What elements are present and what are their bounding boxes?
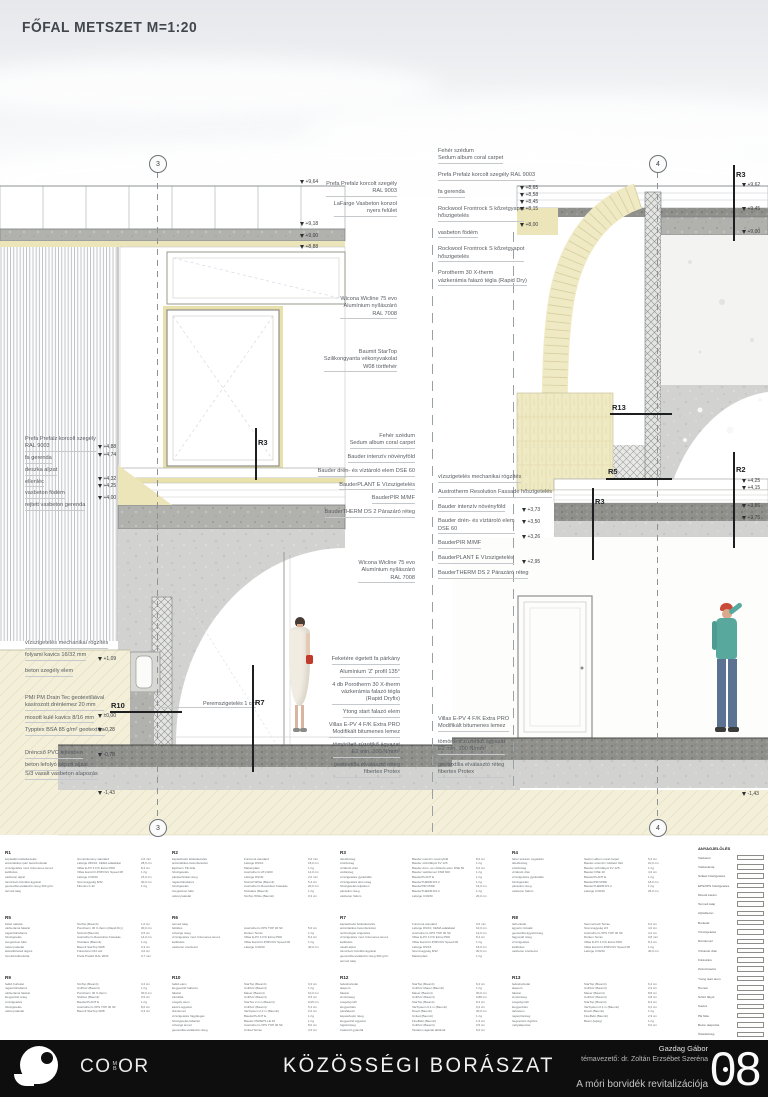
author: Gazdag Gábor <box>460 1044 708 1055</box>
studio-name: CO M B OR <box>80 1056 150 1078</box>
annotation-label: vízszigetelés mechanikai rögzítés <box>438 474 521 483</box>
layer-table: R8 térburkolat Semmelrock Terrae 6,0 cm … <box>512 915 674 954</box>
annotation-label: Villas E-PV 4 F/K Extra PRO Modifikált b… <box>329 722 400 738</box>
figure-man <box>704 603 746 740</box>
annotation-label: folyami kavics 16/32 mm <box>25 652 86 661</box>
elevation-marker: +9,62 <box>742 183 760 188</box>
annotation-label: vízszigetelés mechanikai rögzítés <box>25 640 108 649</box>
layer-row: termett talaj <box>340 959 502 964</box>
annotation-label: fa gerenda <box>438 189 465 198</box>
elevation-marker: +4,88 <box>98 445 116 450</box>
man-jeans-leg <box>728 659 737 727</box>
elevation-marker: +9,00 <box>742 230 760 235</box>
annotation-group-right-floor: Villas E-PV 4 F/K Extra PRO Modifikált b… <box>438 716 550 778</box>
annotation-group-left-window-top: Wicona Wicline 75 evo Alumínium nyílászá… <box>285 296 397 319</box>
annotation-label: geotextília elválasztó réteg fibertex Pr… <box>334 762 400 778</box>
annotation-label: BauderPLANT E Vízszigetelés <box>339 482 415 491</box>
material-legend-row: Zúzott kavics <box>698 965 768 974</box>
annotation-label: Prefa Prefalz korcolt szegély RAL 9003 <box>25 436 96 452</box>
layer-table-rows: fedésburkolat StarTop (Baumit) 6,2 cm al… <box>340 982 502 1033</box>
annotation-label: PMI PM Drain Tec geotextíliával kasírozo… <box>25 695 104 711</box>
r3-line <box>255 428 257 480</box>
elevation-marker: +9,18 <box>300 222 318 227</box>
material-swatch <box>737 873 764 879</box>
annotation-group-left-foundation: S/3 vasalt vasbeton alapozás <box>25 771 180 780</box>
annotation-label: Alumínium 'Z' profil 135° <box>340 669 400 678</box>
annotation-label: BauderPIR M/MF <box>438 540 481 549</box>
r2-label: R2 <box>736 465 746 474</box>
r13-label: R13 <box>612 403 626 412</box>
material-legend-row: Szűrő fátyol <box>698 992 768 1001</box>
r10-label: R10 <box>111 701 125 710</box>
material-legend-row: Termett talaj <box>698 899 768 908</box>
material-legend-row: Beton alapozás <box>698 1020 768 1029</box>
material-swatch <box>737 939 764 945</box>
material-swatch <box>737 994 764 1000</box>
section-cut-line <box>432 228 433 832</box>
annotation-label: Dréncső PVC lejtésben <box>25 750 83 759</box>
elevation-marker: +2,95 <box>522 560 540 565</box>
elevation-marker: +4,00 <box>98 496 116 501</box>
elevation-marker: -0,78 <box>98 753 115 758</box>
material-swatch <box>737 929 764 935</box>
annotation-label: Porotherm 30 X-therm vázkerámia falazó t… <box>438 270 527 286</box>
annotation-group-right-roof: Fehér szédum Sedum album coral carpetPre… <box>438 148 553 286</box>
man-shoe <box>728 727 739 732</box>
material-legend-row: Víztároló drén <box>698 946 768 955</box>
layer-table-rows: fehér szédum vegetáció Sedum album coral… <box>512 857 674 894</box>
material-swatch <box>737 1022 764 1028</box>
annotation-group-left-grade-b: beton szegély elem <box>25 668 180 677</box>
r7-label: R7 <box>255 698 265 707</box>
elevation-marker: -1,43 <box>98 791 115 796</box>
layer-row: vasbeton födém Lafarge C30/40 20,0 cm <box>340 894 502 899</box>
annotation-label: beton lefolyó képző aljzat <box>25 762 88 771</box>
elevation-marker: +9,00 <box>300 234 318 239</box>
annotation-group-left-window: Wicona Wicline 75 evo Alumínium nyílászá… <box>303 560 415 583</box>
layer-table: R6 termett talaj feltöltés Austrotherm X… <box>172 915 334 949</box>
elevation-marker: +3,50 <box>522 520 540 525</box>
annotation-group-left-greenroof: Fehér szédum Sedum album coral carpetBau… <box>303 433 415 518</box>
r13-line <box>610 413 672 415</box>
annotation-label: 4 db Porotherm 30 X-therm vázkerámia fal… <box>332 682 400 705</box>
material-legend-row: Vízszigetelés <box>698 927 768 936</box>
annotation-label: ellenléc <box>25 479 44 488</box>
material-legend-row: Aljzatbeton <box>698 909 768 918</box>
layer-table-rows: ültetőközeg Bauder intenzív növényföld 8… <box>340 857 502 899</box>
layer-table-id: R6 <box>172 915 334 920</box>
material-legend-row: Vázkerámia <box>698 862 768 871</box>
sheet-title: FŐFAL METSZET M=1:20 <box>22 19 197 36</box>
annotation-label: BauderPLANT E Vízszigetelés <box>438 555 514 564</box>
r3b-line <box>592 488 594 560</box>
layer-table-rows: belső vakolat StoTop (Baumit) 1,0 cm váz… <box>5 922 167 959</box>
material-swatch <box>737 892 764 898</box>
annotation-label: S/3 vasalt vasbeton alapozás <box>25 771 98 780</box>
elevation-marker: +4,15 <box>742 486 760 491</box>
material-swatch <box>737 1013 764 1019</box>
annotation-label: Fehér szédum Sedum album coral carpet <box>438 148 503 164</box>
r10-line <box>110 711 182 713</box>
annotation-perimeter-insulation: Peremszigetelés 1 cm <box>158 701 256 708</box>
r3-label: R3 <box>258 438 268 447</box>
annotation-label: tömörített zúzottkő ágyazat E2 min. 100 … <box>438 739 505 755</box>
r3c-label: R3 <box>736 170 746 179</box>
material-swatch <box>737 920 764 926</box>
annotation-label: Wicona Wicline 75 evo Alumínium nyílászá… <box>340 296 397 319</box>
material-legend-items: Vasbeton Vázkerámia Szálas hőszigetelés … <box>698 853 768 1048</box>
drawing-sheet: FŐFAL METSZET M=1:20 <box>0 0 768 1097</box>
layer-row: vasbeton szerkezet Lafarge C30/40 40,0 c… <box>512 949 674 954</box>
man-shirt <box>716 618 737 659</box>
layer-legend-tables: R1 kopásálló felületkezelés Gumiőrlemény… <box>0 845 690 1050</box>
man-arm <box>712 621 717 650</box>
annotation-label: mosott kulé kavics 8/16 mm <box>25 715 94 724</box>
annotation-group-center-sill: Feketére égetett fa párkányAlumínium 'Z'… <box>290 656 400 778</box>
annotation-label: Bauder intenzív növényföld <box>438 504 505 513</box>
material-swatch <box>737 911 764 917</box>
material-legend-row: Kavics <box>698 1002 768 1011</box>
layer-table-id: R2 <box>172 850 334 855</box>
man-jeans-leg <box>717 659 726 727</box>
annotation-label: deszka aljzat <box>25 467 57 476</box>
elevation-marker: +8,15 <box>520 207 538 212</box>
elevation-marker: +8,65 <box>520 186 538 191</box>
material-legend-row: Vasbeton <box>698 853 768 862</box>
r5-label: R5 <box>608 467 618 476</box>
annotation-group-left-roof-edge: Prefa Prefalz korcolt szegély RAL 9003La… <box>285 181 397 217</box>
material-legend-title: ANYAGJELÖLÉS <box>698 846 768 851</box>
layer-table-id: R9 <box>5 975 167 980</box>
annotation-label: Prefa Prefalz korcolt szegély RAL 9003 <box>326 181 397 197</box>
annotation-label: Fehér szédum Sedum album coral carpet <box>350 433 415 449</box>
annotation-label: Ytong start falazó elem <box>343 709 400 718</box>
grid-marker-4-top: 4 <box>649 155 667 173</box>
credits: Gazdag Gábor témavezető: dr. Zoltán Erzs… <box>460 1044 708 1064</box>
annotation-label: Rockwool Frontrock S kőzetgyapot hőszige… <box>438 246 524 262</box>
layer-table-id: R1 <box>5 850 167 855</box>
layer-row: geotextília elválasztó réteg United Terr… <box>172 1028 334 1033</box>
layer-table: R9 fedkő burkolat StoTop (Baumit) 3,2 cm… <box>5 975 167 1014</box>
annotation-label: Feketére égetett fa párkány <box>332 656 400 665</box>
elevation-marker: +9,45 <box>742 207 760 212</box>
r7-line <box>252 665 254 772</box>
annotation-label: LaFarge Vasbeton konzol nyers felület <box>334 201 397 217</box>
elevation-marker: +3,26 <box>522 535 540 540</box>
layer-row: termett talaj <box>5 889 167 894</box>
layer-table-rows: fedésburkolat StarTop (Baumit) 6,2 cm al… <box>512 982 674 1028</box>
layer-table-rows: kopásálló felületkezelés Gumiőrlemény st… <box>5 857 167 894</box>
layer-row: vékonyvakolat StoTop White (Baumit) 0,3 … <box>172 894 334 899</box>
layer-row: vasbeton födém Lafarge C30/40 25,0 cm <box>512 889 674 894</box>
material-legend-row: Drénlemez <box>698 937 768 946</box>
material-swatch <box>737 966 764 972</box>
layer-table: R1 kopásálló felületkezelés Gumiőrlemény… <box>5 850 167 894</box>
annotation-label: Typptex BSA 85 g/m² geotextília <box>25 727 105 736</box>
layer-table-rows: fedkő elem StarTop (Baumit) 3,2 cm kiegy… <box>172 982 334 1033</box>
annotation-label: vasbeton födém <box>438 230 478 239</box>
elevation-marker: +8,00 <box>520 223 538 228</box>
page-number-dot <box>723 1067 728 1072</box>
elevation-marker: +4,32 <box>98 477 116 482</box>
layer-row: zsaluzott gyámfal Tartalom ágazati táblá… <box>340 1028 502 1033</box>
r3c-line <box>733 165 735 241</box>
layer-table-id: R7 <box>340 915 502 920</box>
layer-table-rows: kapaszkodó felületkezelés Funciona stand… <box>172 857 334 899</box>
elevation-marker: +8,58 <box>520 193 538 198</box>
annotation-label: Villas E-PV 4 F/K Extra PRO Modifikált b… <box>438 716 509 732</box>
layer-table-id: R3 <box>340 850 502 855</box>
annotation-label: Baumit StarTop Szilikongyanta vékonyvako… <box>324 349 397 372</box>
layer-table-id: R12 <box>340 975 502 980</box>
elevation-marker: +8,45 <box>520 200 538 205</box>
layer-table-id: R13 <box>512 975 674 980</box>
annotation-group-left-render: Baumit StarTop Szilikongyanta vékonyvako… <box>285 349 397 372</box>
layer-table: R10 fedkő elem StarTop (Baumit) 3,2 cm k… <box>172 975 334 1033</box>
page-number: 08 <box>710 1040 760 1097</box>
material-legend: ANYAGJELÖLÉS Vasbeton Vázkerámia Szálas … <box>698 846 768 1048</box>
layer-table-rows: térburkolat Semmelrock Terrae 6,0 cm ágy… <box>512 922 674 954</box>
annotation-label: tömörített zúzottkő ágyazat E2 min. 100 … <box>333 742 400 758</box>
annotation-label: Bauder intenzív növényföld <box>348 454 415 463</box>
studio-name-stack: M B <box>113 1062 118 1073</box>
material-legend-row: PE fólia <box>698 1011 768 1020</box>
layer-table: R7 kapaszkodó felületkezelés Funciona st… <box>340 915 502 963</box>
layer-table-rows: fedkő burkolat StoTop (Baumit) 3,2 cm ra… <box>5 982 167 1014</box>
layer-table-rows: kapaszkodó felületkezelés Funciona stand… <box>340 922 502 964</box>
material-swatch <box>737 855 764 861</box>
elevation-marker: +3,86 <box>742 504 760 509</box>
r2-line <box>733 452 735 548</box>
layer-table-id: R4 <box>512 850 674 855</box>
annotation-label: Rockwool Frontrock S kőzetgyapot hőszige… <box>438 206 524 222</box>
annotation-label: Wicona Wicline 75 evo Alumínium nyílászá… <box>358 560 415 583</box>
material-swatch <box>737 883 764 889</box>
material-swatch <box>737 948 764 954</box>
elevation-marker: +9,64 <box>300 180 318 185</box>
grid-line-4 <box>657 172 658 818</box>
annotation-label: BauderPIR M/MF <box>372 495 415 504</box>
layer-table-id: R10 <box>172 975 334 980</box>
material-swatch <box>737 985 764 991</box>
layer-table: R5 belső vakolat StoTop (Baumit) 1,0 cm … <box>5 915 167 959</box>
annotation-label: Bauder drén- és víztároló elem DSE 60 <box>438 518 515 534</box>
material-swatch <box>737 864 764 870</box>
grid-marker-3-bottom: 3 <box>149 819 167 837</box>
annotation-label: vasbeton födém <box>25 490 65 499</box>
elevation-marker: +4,25 <box>98 484 116 489</box>
material-legend-row: Szálas hőszigetelés <box>698 872 768 881</box>
material-swatch <box>737 1032 764 1038</box>
man-shoe <box>715 727 726 732</box>
layer-table: R2 kapaszkodó felületkezelés Funciona st… <box>172 850 334 898</box>
layer-row: vékonyvakolat Baumit StarTop W08 0,3 cm <box>5 1009 167 1014</box>
layer-table: R4 fehér szédum vegetáció Sedum album co… <box>512 850 674 894</box>
material-legend-row: Mosott kavics <box>698 890 768 899</box>
elevation-marker: +8,88 <box>300 245 318 250</box>
r3b-label: R3 <box>595 497 605 506</box>
supervisor: témavezető: dr. Zoltán Erzsébet Szeréna <box>460 1055 708 1065</box>
elevation-marker: +3,75 <box>742 516 760 521</box>
annotation-label: BauderTHERM DS 2 Párazáró réteg <box>438 570 528 579</box>
layer-table: R12 fedésburkolat StarTop (Baumit) 6,2 c… <box>340 975 502 1033</box>
layer-table: R13 fedésburkolat StarTop (Baumit) 6,2 c… <box>512 975 674 1028</box>
layer-table-id: R5 <box>5 915 167 920</box>
layer-row: vasbeton szerkezet Lafarge C30/40 40,0 c… <box>172 945 334 950</box>
annotation-label: Bauder drén- és víztároló elem DSE 60 <box>318 468 415 477</box>
material-legend-row: Ültetőközeg <box>698 1030 768 1039</box>
annotation-label: fa gerenda <box>25 455 52 464</box>
material-legend-row: Ytong start elem <box>698 974 768 983</box>
studio-logo-icon <box>14 1043 62 1093</box>
elevation-marker: +1,09 <box>98 657 116 662</box>
elevation-marker: -1,43 <box>742 792 759 797</box>
elevation-marker: +4,25 <box>742 479 760 484</box>
elevation-marker: +3,73 <box>522 508 540 513</box>
elevation-marker: +4,74 <box>98 453 116 458</box>
material-legend-row: Burkolat <box>698 918 768 927</box>
annotation-label: beton szegély elem <box>25 668 73 677</box>
annotation-label: rejtett vasbeton gerenda <box>25 502 85 511</box>
material-legend-row: EPS/XPS hőszigetelés <box>698 881 768 890</box>
material-swatch <box>737 957 764 963</box>
layer-table-id: R8 <box>512 915 674 920</box>
material-swatch <box>737 976 764 982</box>
material-legend-row: Homok <box>698 983 768 992</box>
annotation-label: geotextília elválasztó réteg fibertex Pr… <box>438 762 504 778</box>
annotation-label: Austrotherm Resolution Fassade hőszigete… <box>438 489 552 498</box>
project-subtitle: A móri borvidék revitalizációja <box>460 1079 708 1090</box>
layer-table-rows: termett talaj feltöltés Austrotherm XPS … <box>172 922 334 950</box>
elevation-marker: -0,28 <box>98 728 115 733</box>
annotation-label: Prefa Prefalz korcolt szegély RAL 9003 <box>438 172 535 181</box>
elevation-marker: ±0,00 <box>98 714 116 719</box>
title-bar: CO M B OR KÖZÖSSÉGI BORÁSZAT Gazdag Gábo… <box>0 1040 768 1097</box>
r5-line <box>606 478 672 480</box>
annotation-label: BauderTHERM DS 2 Párazáró réteg <box>325 509 415 518</box>
layer-row: mélyalapozás 6,0 cm <box>512 1023 674 1028</box>
material-swatch <box>737 1004 764 1010</box>
grid-marker-4-bottom: 4 <box>649 819 667 837</box>
material-swatch <box>737 901 764 907</box>
grid-marker-3-top: 3 <box>149 155 167 173</box>
layer-table: R3 ültetőközeg Bauder intenzív növényföl… <box>340 850 502 898</box>
layer-row: homlokzatburkolat Prefa Prefalz RAL 9003… <box>5 954 167 959</box>
material-legend-row: Fűrészáru <box>698 955 768 964</box>
